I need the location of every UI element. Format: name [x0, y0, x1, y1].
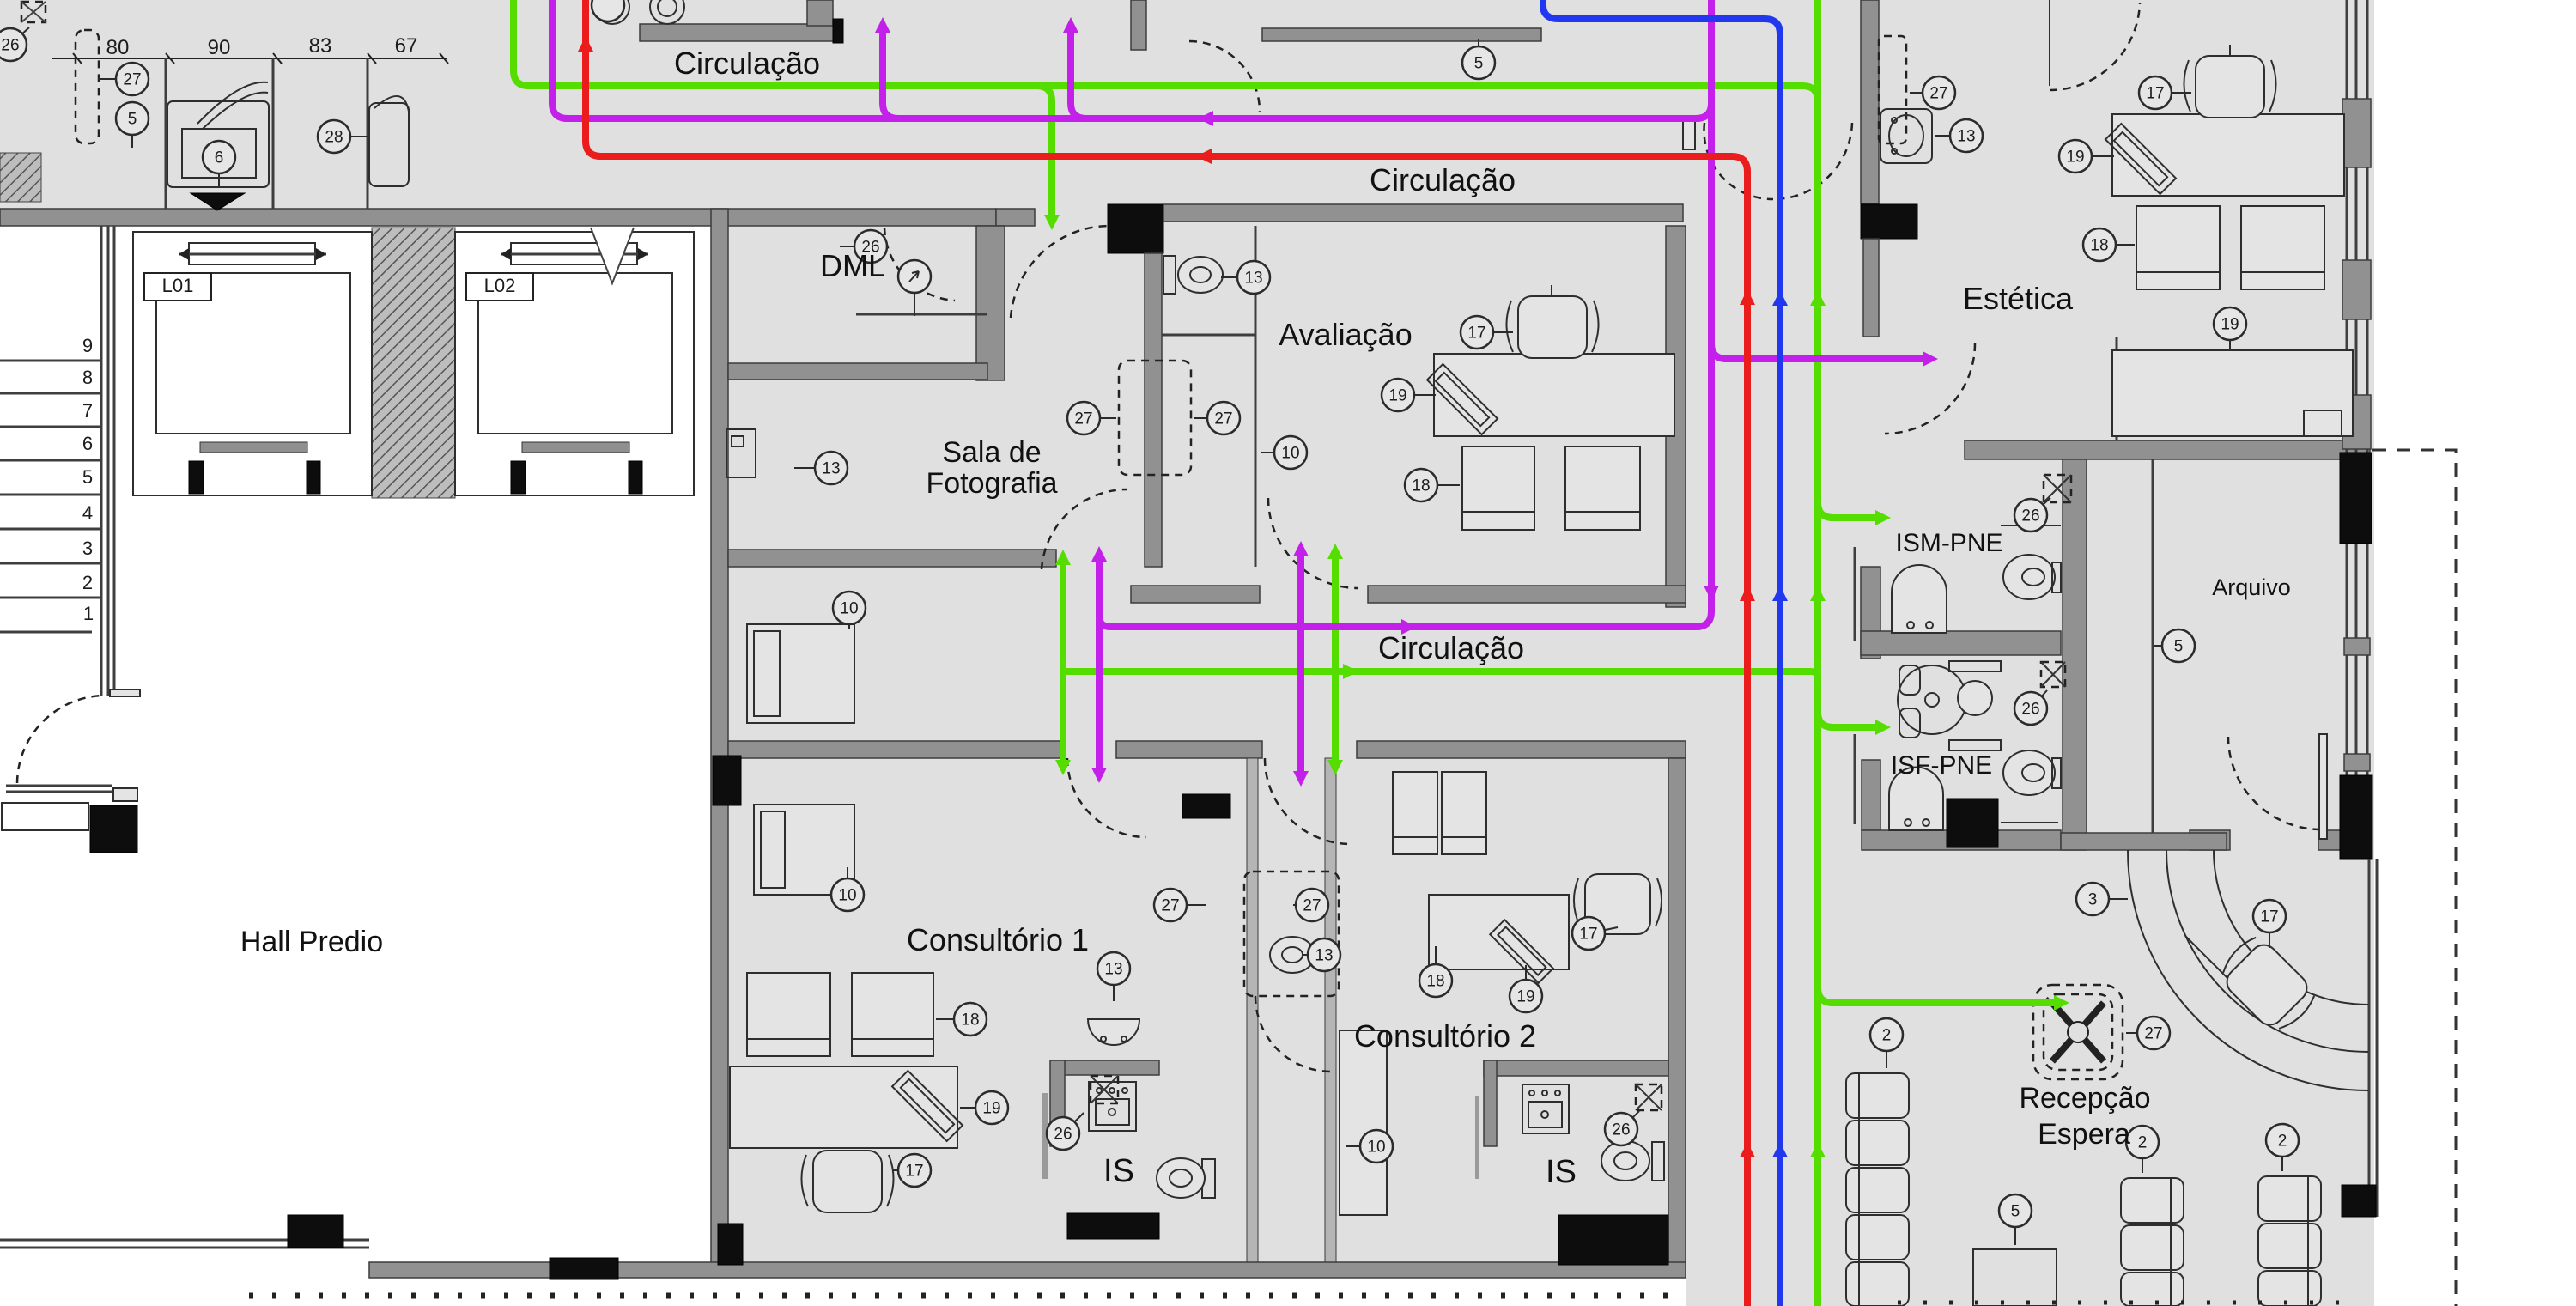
svg-text:3: 3 — [2088, 891, 2098, 909]
room-label-circulacao-top: Circulação — [674, 46, 820, 81]
svg-text:17: 17 — [2260, 908, 2278, 926]
stair-number: 1 — [83, 603, 94, 624]
dimension-text: 83 — [309, 34, 332, 58]
svg-text:19: 19 — [1388, 387, 1406, 405]
callout-26: 26 — [2014, 690, 2047, 725]
callout-26: 26 — [1605, 1111, 1639, 1145]
svg-text:2: 2 — [1882, 1027, 1892, 1045]
svg-text:19: 19 — [982, 1100, 1000, 1118]
svg-text:27: 27 — [1303, 897, 1321, 915]
room-label-consultorio-1: Consultório 1 — [907, 922, 1089, 957]
stair-number: 5 — [82, 466, 93, 488]
svg-text:18: 18 — [1412, 477, 1430, 495]
dimension-text: 80 — [106, 36, 130, 59]
room-label-is-1: IS — [1103, 1153, 1134, 1189]
floorplan-svg: 2627562826131327271010171918510181917132… — [0, 0, 2576, 1306]
svg-text:27: 27 — [123, 71, 141, 89]
svg-text:26: 26 — [1, 37, 19, 55]
exam-bed-cons2 — [1340, 1030, 1387, 1215]
svg-text:10: 10 — [1281, 445, 1299, 463]
svg-text:17: 17 — [1467, 325, 1485, 343]
room-label-arquivo: Arquivo — [2212, 574, 2291, 600]
svg-text:19: 19 — [1516, 988, 1534, 1006]
exec-chair-cons1 — [801, 1151, 893, 1212]
svg-text:13: 13 — [1957, 128, 1975, 146]
room-label-estetica: Estética — [1963, 281, 2074, 316]
stair-number: 9 — [82, 335, 93, 356]
room-label-circulacao-low: Circulação — [1378, 630, 1524, 665]
svg-text:6: 6 — [215, 149, 224, 167]
tag-label-l01: L01 — [162, 275, 194, 296]
room-label-sala-de: Sala de — [942, 436, 1041, 469]
callout-tag — [592, 0, 624, 21]
room-label-avaliacao: Avaliação — [1279, 317, 1412, 352]
svg-text:27: 27 — [1929, 85, 1947, 103]
room-label-ism-pne: ISM-PNE — [1895, 529, 2002, 557]
svg-text:17: 17 — [1579, 926, 1597, 944]
exam-bed-sala — [747, 624, 854, 723]
svg-text:2: 2 — [2278, 1133, 2287, 1151]
svg-text:27: 27 — [2144, 1025, 2162, 1043]
svg-text:13: 13 — [822, 460, 840, 478]
svg-text:13: 13 — [1244, 270, 1262, 288]
svg-text:27: 27 — [1214, 410, 1232, 428]
room-label-is-2: IS — [1546, 1154, 1577, 1190]
tag-label-l02: L02 — [484, 275, 516, 296]
stair-number: 2 — [82, 572, 93, 593]
svg-text:10: 10 — [840, 600, 858, 618]
stair-number: 6 — [82, 433, 93, 454]
svg-text:18: 18 — [961, 1011, 979, 1030]
svg-text:10: 10 — [1367, 1139, 1385, 1157]
svg-text:27: 27 — [1161, 897, 1179, 915]
stair-number: 4 — [82, 502, 93, 524]
room-label-dml: DML — [820, 248, 885, 283]
room-label-isf-pne: ISF-PNE — [1891, 751, 1992, 780]
svg-text:5: 5 — [2011, 1203, 2020, 1221]
dimension-text: 67 — [395, 34, 418, 58]
svg-text:13: 13 — [1104, 961, 1122, 979]
svg-text:13: 13 — [1315, 947, 1333, 965]
svg-text:5: 5 — [1474, 55, 1484, 73]
svg-text:27: 27 — [1074, 410, 1092, 428]
stair-number: 8 — [82, 367, 93, 388]
room-label-hall-predio: Hall Predio — [240, 926, 383, 958]
room-label-fotografia: Fotografia — [926, 467, 1057, 500]
room-label-circulacao-mid: Circulação — [1370, 162, 1516, 197]
svg-text:18: 18 — [2090, 237, 2108, 255]
room-label-consultorio-2: Consultório 2 — [1354, 1018, 1536, 1054]
svg-text:2: 2 — [2138, 1134, 2148, 1152]
dimension-text: 90 — [208, 36, 231, 59]
svg-text:26: 26 — [2021, 507, 2039, 525]
svg-text:5: 5 — [2174, 638, 2184, 656]
room-label-recepcao: Recepção — [2019, 1082, 2150, 1115]
svg-text:28: 28 — [325, 129, 343, 147]
sink-ism — [1892, 565, 1947, 633]
svg-text:17: 17 — [2146, 85, 2164, 103]
svg-text:19: 19 — [2221, 316, 2239, 334]
svg-text:26: 26 — [1612, 1121, 1630, 1139]
svg-text:17: 17 — [905, 1163, 923, 1181]
svg-text:5: 5 — [128, 111, 137, 129]
svg-text:26: 26 — [1054, 1126, 1072, 1144]
svg-text:26: 26 — [2021, 701, 2039, 719]
svg-text:19: 19 — [2066, 149, 2084, 167]
room-label-espera: Espera — [2038, 1118, 2130, 1151]
svg-text:10: 10 — [838, 887, 856, 905]
svg-text:18: 18 — [1426, 973, 1444, 991]
stair-number: 7 — [82, 400, 93, 422]
floorplan-stage: 2627562826131327271010171918510181917132… — [0, 0, 2576, 1306]
stair-number: 3 — [82, 538, 93, 559]
